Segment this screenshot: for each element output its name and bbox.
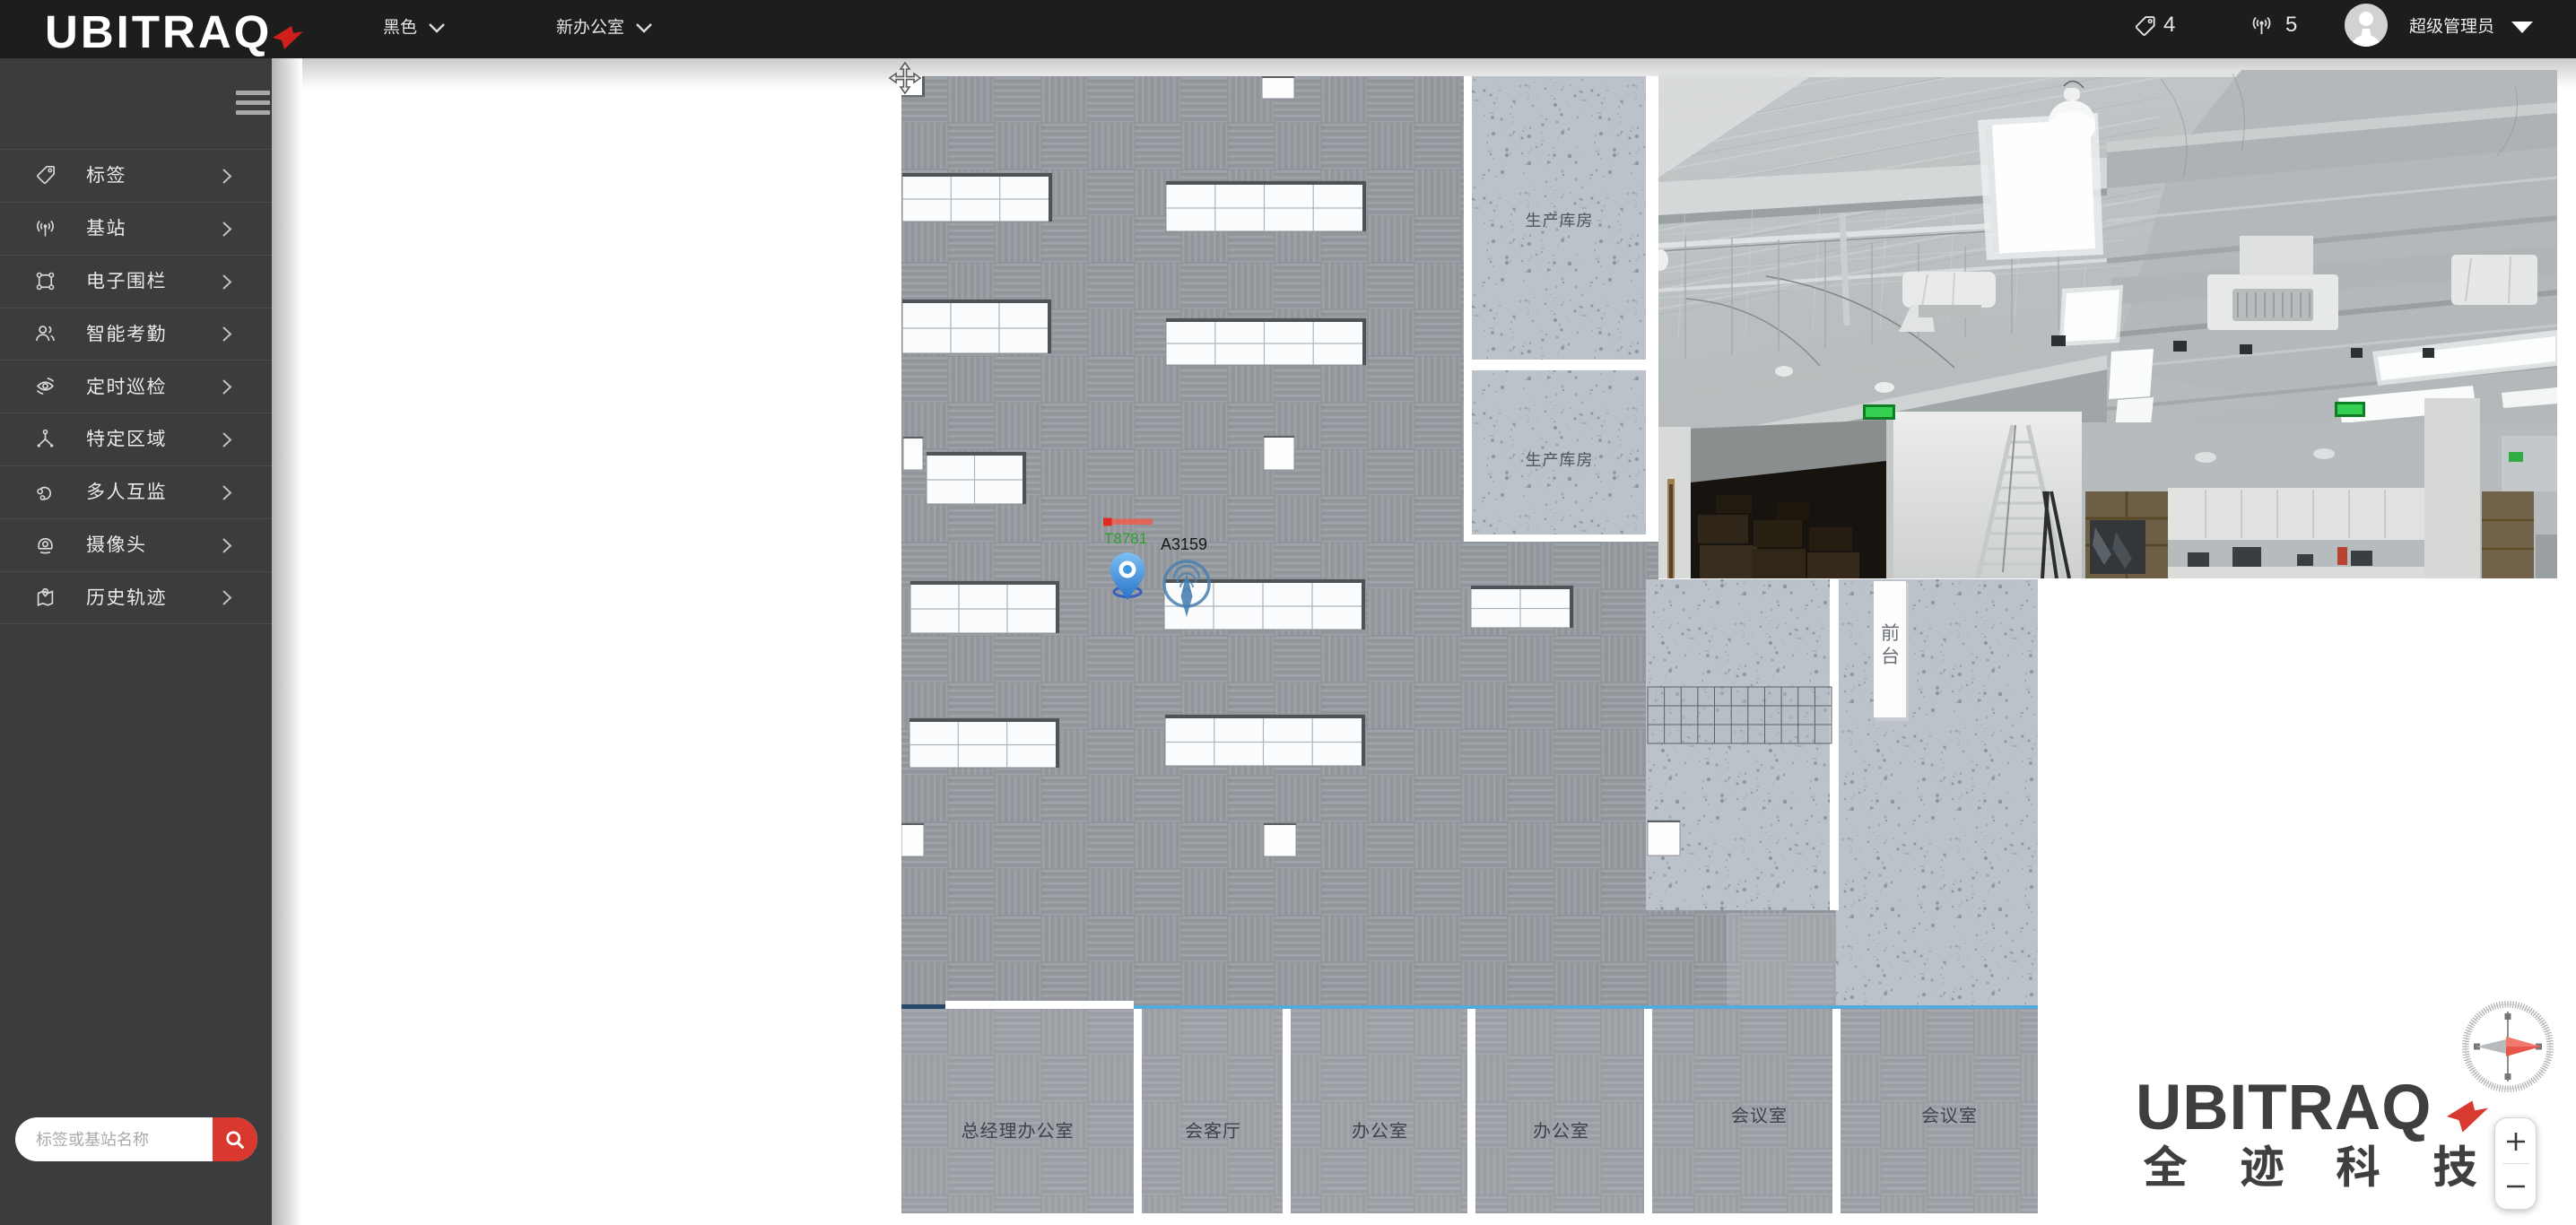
svg-text:T8781: T8781 xyxy=(1104,530,1147,547)
svg-text:A3159: A3159 xyxy=(1161,535,1207,553)
